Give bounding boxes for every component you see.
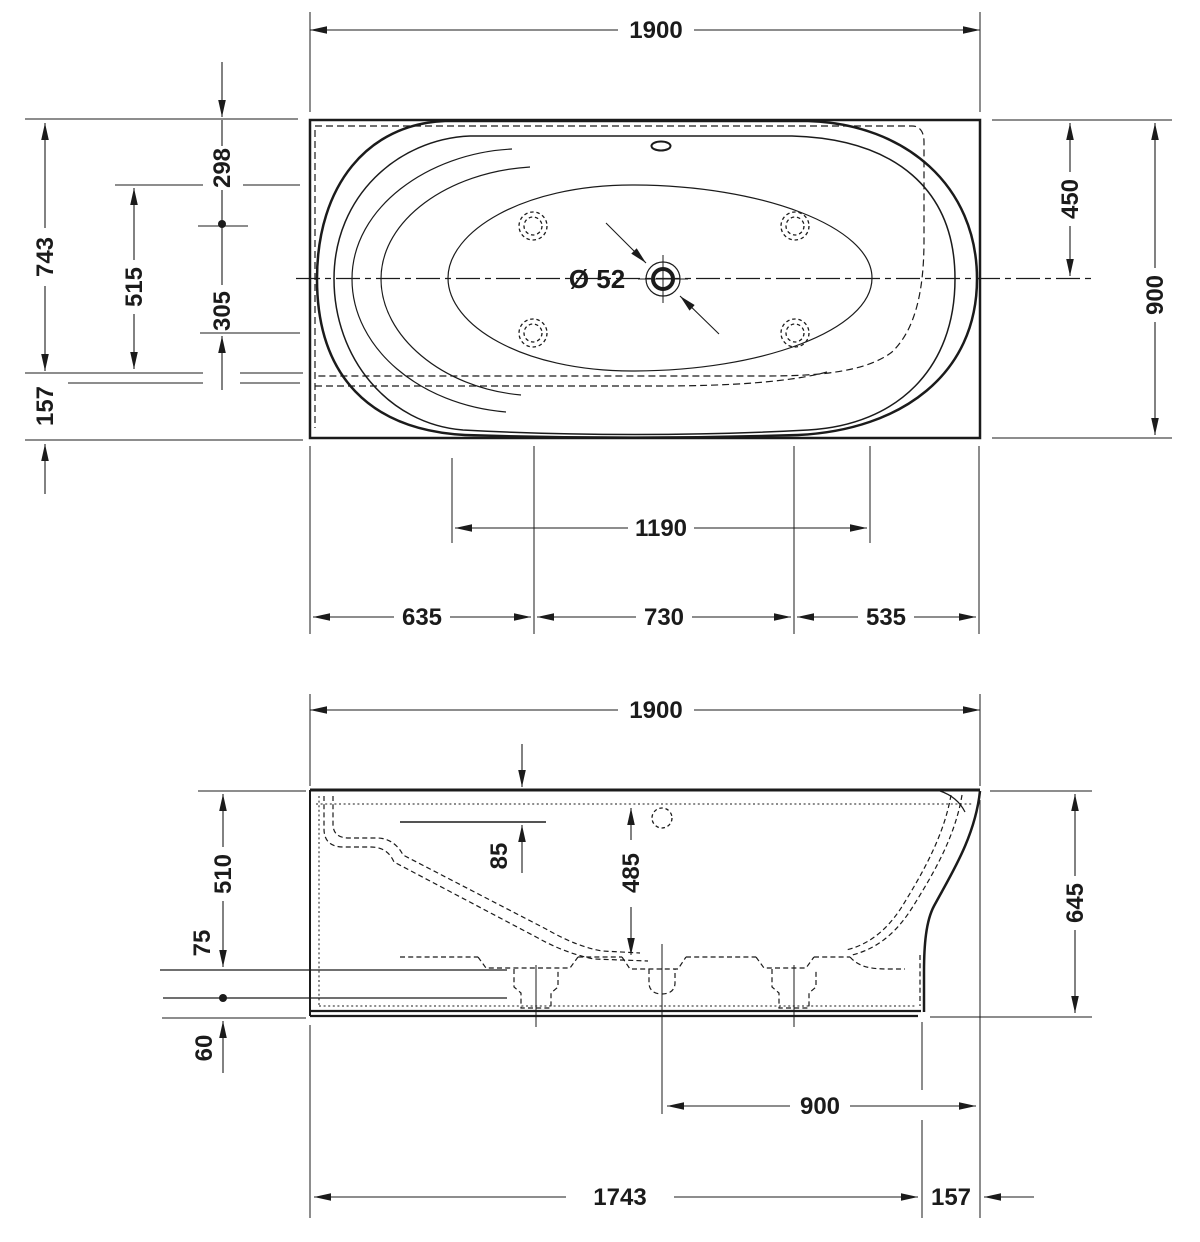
dim-side-60: 60: [191, 1035, 218, 1062]
dim-side-75: 75: [189, 930, 216, 957]
dim-plan-1190: 1190: [635, 515, 687, 542]
dim-plan-743: 743: [32, 237, 59, 277]
dim-plan-535: 535: [866, 604, 906, 631]
dim-plan-305: 305: [209, 291, 236, 331]
side-right-curve: [924, 791, 980, 1012]
left-shoulder-curve-2: [381, 167, 530, 395]
drawing-sheet: Ø 52: [0, 0, 1200, 1242]
overflow-slot: [652, 142, 671, 151]
overflow-hole-side: [652, 808, 672, 828]
side-dimension-lines: [223, 710, 1075, 1197]
dim-side-1743: 1743: [593, 1184, 646, 1211]
plan-panel-dashed-line2: [315, 372, 827, 386]
dim-plan-157: 157: [32, 386, 59, 426]
dim-plan-298: 298: [209, 148, 236, 188]
interior-dashed-contours: [324, 795, 962, 1008]
dim-plan-730: 730: [644, 604, 684, 631]
feet-centerlines: [536, 965, 794, 1027]
dim-plan-overall-length: 1900: [629, 17, 682, 44]
side-right-rim-edge: [940, 791, 965, 812]
dim-plan-450: 450: [1057, 179, 1084, 219]
dim-side-485: 485: [618, 853, 645, 893]
dim-plan-515: 515: [121, 267, 148, 307]
plan-extension-lines: [25, 12, 1172, 634]
chain-dot-marker: [218, 220, 226, 228]
dim-side-510: 510: [210, 854, 237, 894]
dim-side-900: 900: [800, 1093, 840, 1120]
dim-side-85: 85: [486, 843, 513, 870]
side-extension-lines: [162, 694, 1092, 1218]
dim-side-645: 645: [1062, 883, 1089, 923]
dim-plan-900: 900: [1142, 275, 1169, 315]
side-bottom-edge: [310, 1011, 921, 1016]
dim-plan-635: 635: [402, 604, 442, 631]
chain-dot-marker-side: [219, 994, 227, 1002]
bathtub-technical-drawing: Ø 52: [0, 0, 1200, 1242]
plan-panel-dashed-outline: [315, 126, 924, 376]
left-shoulder-curve-1: [352, 149, 512, 412]
side-view: 1900 85 485 510 75 60 645 900 1743 157: [160, 694, 1092, 1218]
dim-side-overall-length: 1900: [629, 697, 682, 724]
shell-inner-dotted: [319, 796, 917, 1006]
plan-view: Ø 52: [25, 12, 1172, 634]
dim-side-157: 157: [931, 1184, 971, 1211]
